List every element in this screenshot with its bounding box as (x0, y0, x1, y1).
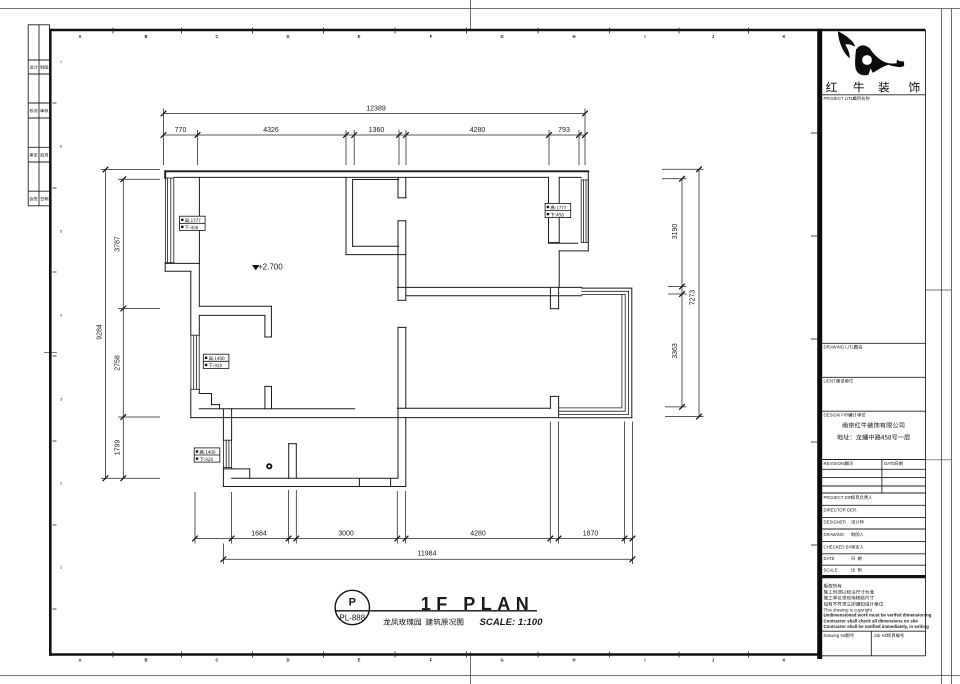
svg-text:770: 770 (175, 127, 187, 134)
svg-text:11984: 11984 (418, 551, 437, 558)
svg-text:SCALE: SCALE (824, 568, 838, 573)
svg-text:1F PLAN: 1F PLAN (421, 594, 535, 614)
svg-text:4280: 4280 (470, 127, 486, 134)
svg-text:C: C (215, 658, 218, 663)
svg-text:I: I (644, 658, 645, 663)
svg-text:This drawing is copyright: This drawing is copyright (824, 607, 873, 612)
svg-text:5: 5 (60, 230, 62, 234)
svg-text:DESIGN FIRM: DESIGN FIRM (824, 413, 853, 418)
svg-text:F: F (430, 658, 433, 663)
svg-text:F: F (430, 34, 433, 39)
svg-text:Job NO: Job NO (874, 633, 889, 638)
svg-text:P: P (349, 597, 356, 609)
svg-text:Drawing NO: Drawing NO (824, 633, 848, 638)
svg-text:PROJECT DIR.: PROJECT DIR. (824, 495, 854, 500)
svg-text:G: G (500, 34, 503, 39)
svg-text:7: 7 (60, 61, 62, 65)
svg-text:1684: 1684 (251, 530, 267, 537)
svg-text:DATE: DATE (824, 556, 835, 561)
svg-text:G: G (500, 658, 503, 663)
svg-text:4280: 4280 (470, 530, 486, 537)
svg-text:9284: 9284 (97, 324, 104, 340)
svg-text:3000: 3000 (338, 530, 354, 537)
svg-text:K: K (782, 34, 785, 39)
svg-text:A: A (78, 658, 81, 663)
svg-text:A: A (78, 34, 81, 39)
svg-text:B: B (144, 34, 147, 39)
svg-text:DRAWING: DRAWING (824, 532, 845, 537)
svg-text:3363: 3363 (672, 343, 679, 359)
svg-text:3190: 3190 (672, 224, 679, 240)
svg-text:Contractor shall check all dim: Contractor shall check all dimensions on… (824, 618, 919, 623)
svg-text:B: B (144, 658, 147, 663)
svg-text:7273: 7273 (690, 290, 697, 306)
svg-text:K: K (782, 658, 785, 663)
svg-text:DESIGNER: DESIGNER (824, 520, 846, 525)
svg-text:DATE: DATE (884, 461, 895, 466)
svg-text:Undimensioned work must be ver: Undimensioned work must be verifed dimen… (824, 613, 932, 618)
svg-text:4: 4 (60, 314, 62, 318)
svg-text:PROJECT LITLE: PROJECT LITLE (824, 96, 857, 101)
svg-text:D: D (286, 34, 289, 39)
svg-text:793: 793 (558, 127, 570, 134)
svg-text:1360: 1360 (369, 127, 385, 134)
svg-text:6: 6 (60, 145, 62, 149)
svg-text:Contractor shall be notified i: Contractor shall be notified immediately… (824, 624, 930, 629)
svg-text:+2.700: +2.700 (258, 263, 283, 272)
svg-text:H: H (572, 658, 575, 663)
svg-text:3787: 3787 (115, 236, 122, 252)
svg-text:I: I (644, 34, 645, 39)
svg-text:1870: 1870 (583, 530, 599, 537)
svg-text:LIENT: LIENT (824, 379, 837, 384)
svg-text:DRAWING LITLE: DRAWING LITLE (824, 345, 857, 350)
svg-text:D: D (286, 658, 289, 663)
svg-text:12389: 12389 (366, 106, 386, 113)
svg-text:SCALE: 1:100: SCALE: 1:100 (480, 617, 544, 628)
svg-text:1: 1 (60, 566, 62, 570)
svg-text:E: E (358, 658, 361, 663)
svg-text:C: C (215, 34, 218, 39)
svg-text:4326: 4326 (263, 127, 279, 134)
svg-text:1799: 1799 (115, 440, 122, 456)
svg-text:2758: 2758 (115, 355, 122, 371)
svg-text:H: H (572, 34, 575, 39)
svg-text:CHECKED BY: CHECKED BY (824, 545, 852, 550)
svg-text:E: E (358, 34, 361, 39)
svg-text:DIRECTOR DER.: DIRECTOR DER. (824, 508, 858, 513)
svg-text:REVISIONS: REVISIONS (824, 461, 848, 466)
svg-text:3: 3 (60, 398, 62, 402)
svg-text:PL-888: PL-888 (339, 614, 365, 623)
svg-text:2: 2 (60, 482, 62, 486)
